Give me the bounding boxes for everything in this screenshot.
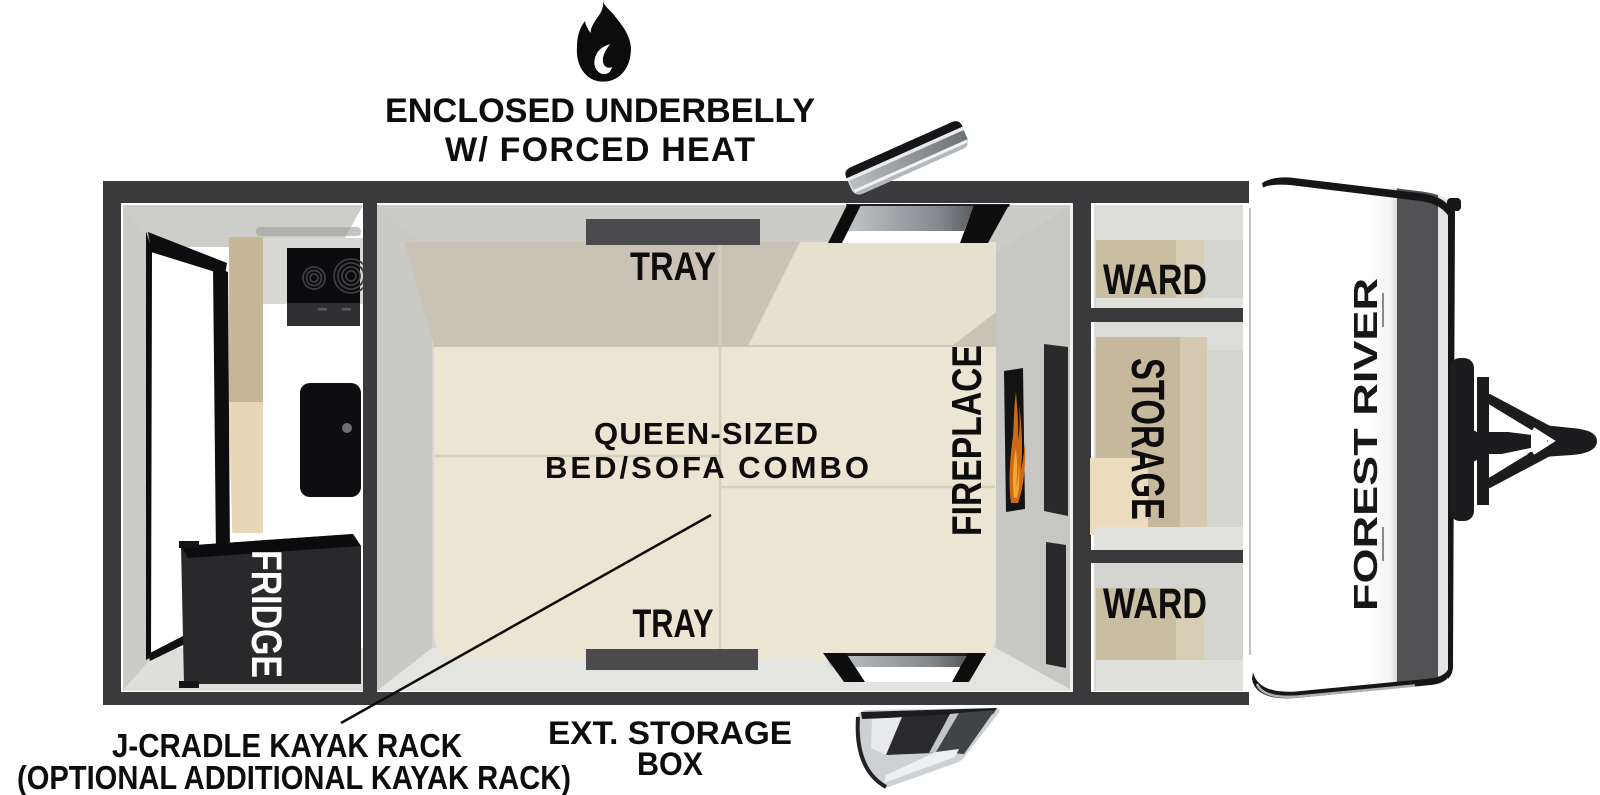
svg-text:WARD: WARD [1103,580,1207,628]
svg-text:FOREST RIVER: FOREST RIVER [1347,278,1384,611]
svg-text:BED/SOFA COMBO: BED/SOFA COMBO [545,450,869,485]
svg-text:STORAGE: STORAGE [1122,358,1174,520]
svg-text:FIREPLACE: FIREPLACE [943,345,990,536]
svg-text:FRIDGE: FRIDGE [242,550,290,678]
svg-text:TRAY: TRAY [633,602,714,646]
svg-text:W/ FORCED HEAT: W/ FORCED HEAT [445,131,755,169]
svg-text:ENCLOSED UNDERBELLY: ENCLOSED UNDERBELLY [385,92,815,130]
svg-text:(OPTIONAL ADDITIONAL KAYAK RAC: (OPTIONAL ADDITIONAL KAYAK RACK) [17,759,571,795]
svg-text:QUEEN-SIZED: QUEEN-SIZED [594,416,818,451]
svg-text:WARD: WARD [1103,256,1207,304]
svg-text:BOX: BOX [637,746,704,782]
svg-text:TRAY: TRAY [630,245,716,289]
